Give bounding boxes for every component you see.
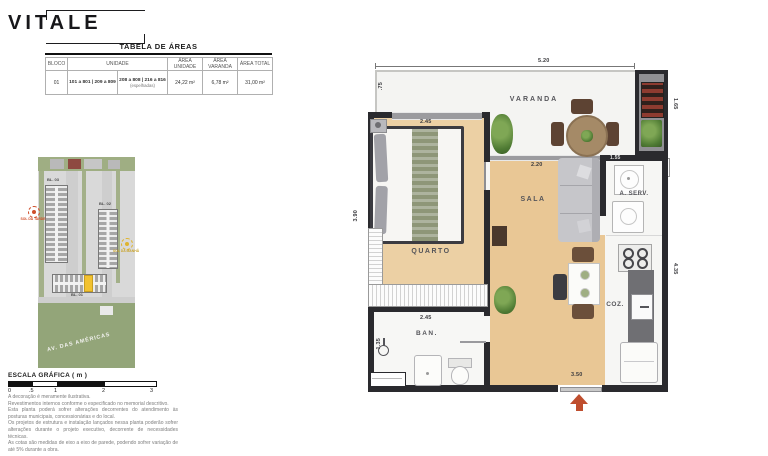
neighbor-building-3 (108, 160, 120, 169)
dim-line-top-tick-right (634, 63, 635, 69)
plate-2 (580, 288, 590, 298)
areas-table-title: TABELA DE ÁREAS (45, 42, 272, 55)
balcony-round-table (566, 115, 608, 157)
balcony-chair-top (571, 99, 593, 114)
floor-plan: 5.20 VARANDA .75 1.65 QUARTO 2.45 3.90 S… (350, 58, 690, 418)
washer-door (620, 208, 637, 225)
cell-unidade-a: 101 a 801 | 209 a 809 (68, 71, 118, 95)
col-unidade: UNIDADE (68, 58, 168, 71)
vanity-drain-dot (426, 372, 429, 375)
planter-box-icon (641, 120, 662, 147)
wardrobe-bottom (368, 284, 488, 307)
sun-afternoon-label: SOL DA TARDE (19, 218, 46, 222)
bl02-building (98, 209, 118, 269)
areas-table-block: TABELA DE ÁREAS BLOCO UNIDADE ÁREA UNIDA… (45, 42, 272, 95)
burner-4 (637, 258, 648, 269)
coz-aserv-divider (606, 235, 662, 236)
bathroom-vanity (414, 355, 442, 386)
disclaimer-line: Esta planta poderá sofrer alterações dec… (8, 407, 178, 420)
cell-area-unidade: 24,22 m² (168, 71, 203, 95)
cell-area-total: 31,00 m² (238, 71, 273, 95)
scale-bar-block: ESCALA GRÁFICA ( m ) 0 .5 1 2 3 (8, 372, 168, 379)
ban-label: BAN. (407, 330, 447, 337)
dim-coz-h: 4.35 (672, 263, 678, 275)
coz-label: COZ. (598, 301, 632, 308)
bed-pillow-2 (374, 186, 388, 234)
cell-bloco: 01 (46, 71, 68, 95)
balcony-chair-left (551, 122, 564, 146)
site-pool (100, 306, 113, 315)
dim-utility-right: 1.65 (672, 98, 678, 110)
scale-segment-3 (57, 382, 105, 386)
plant-sala-icon (494, 286, 516, 314)
dim-varanda-left: .75 (378, 82, 384, 90)
sun-morning-core (125, 242, 129, 246)
sala-label: SALA (510, 196, 556, 203)
disclaimer-line: Os projetos de estrutura e instalação la… (8, 420, 178, 440)
col-area-unidade: ÁREA UNIDADE (168, 58, 203, 71)
fridge-handle (624, 361, 654, 362)
nightstand (370, 119, 387, 133)
bl03-building (45, 185, 68, 263)
neighbor-building-1 (50, 159, 64, 169)
neighbor-building-2 (84, 159, 102, 169)
entry-arrow-stem (576, 404, 583, 411)
cell-area-varanda: 6,78 m² (203, 71, 238, 95)
plant-varanda-icon (491, 114, 513, 154)
kitchen-sink (631, 294, 653, 320)
ban-door-opening (484, 316, 490, 342)
bl02-label: BL. 02 (99, 202, 111, 207)
scale-segment-2 (33, 382, 57, 386)
site-lawn-strip-1 (39, 171, 44, 297)
aserv-door-opening (600, 216, 606, 235)
cell-unidade-b-note: (espelhadas) (118, 83, 167, 88)
disclaimer-line: A decoração é meramente ilustrativa. (8, 394, 178, 401)
dining-chair-bottom (572, 304, 594, 319)
fridge (620, 342, 658, 383)
bed-pillow-1 (374, 134, 388, 183)
scale-bar-ruler (8, 381, 157, 387)
scale-segment-1 (9, 382, 33, 386)
wall-outer-right (662, 155, 668, 392)
dim-aserv-w: 1.55 (610, 155, 621, 161)
shower-head-icon (378, 345, 389, 356)
ban-door-leaf (460, 341, 486, 343)
areas-table: BLOCO UNIDADE ÁREA UNIDADE ÁREA VARANDA … (45, 57, 273, 95)
dim-line-top-tick-left (375, 63, 376, 69)
tv-rack (492, 226, 507, 246)
neighbor-building-red (68, 159, 81, 169)
dim-ban-w: 2.45 (420, 315, 432, 321)
col-area-varanda: ÁREA VARANDA (203, 58, 238, 71)
sofa (558, 158, 600, 242)
aserv-label: A. SERV. (606, 191, 662, 197)
dim-quarto-w: 2.45 (420, 119, 432, 125)
dining-table (568, 263, 600, 305)
plate-1 (580, 270, 590, 280)
bl01-highlighted-unit (84, 275, 93, 292)
site-map: BL. 03 BL. 02 BL. 01 AV. DAS AMÉRICAS (38, 157, 135, 368)
tank-drain-dot (627, 177, 630, 180)
floorplan-marketing-sheet: { "logo": { "text": "VITALE" }, "areas_t… (0, 0, 768, 456)
disclaimer-line: Revestimentos internos conforme o especi… (8, 401, 178, 408)
ban-window (370, 372, 406, 387)
dining-chair-top (572, 247, 594, 262)
bl03-label: BL. 03 (47, 178, 59, 183)
col-bloco: BLOCO (46, 58, 68, 71)
site-lawn-strip-2 (82, 171, 86, 275)
sun-afternoon-icon (28, 206, 40, 218)
faucet-icon (640, 306, 649, 308)
sofa-cushion-line-2 (560, 213, 592, 214)
dim-sala-w: 2.20 (531, 162, 543, 168)
sofa-throw-pillow-1 (576, 164, 591, 179)
quarto-door-leaf (484, 162, 486, 190)
bl01-building (52, 274, 107, 293)
washing-machine (612, 201, 644, 233)
entry-door-panel (560, 387, 602, 392)
sun-morning-label: SOL DA MANHÃ (112, 250, 139, 254)
wall-outer-bottom (368, 385, 668, 392)
dining-chair-left (553, 274, 567, 300)
cell-unidade-b-range: 208 a 808 | 216 a 816 (118, 78, 167, 83)
sofa-backrest (592, 158, 600, 242)
varanda-label: VARANDA (498, 96, 570, 103)
scale-bar-title: ESCALA GRÁFICA ( m ) (8, 372, 168, 379)
bed (370, 126, 464, 244)
sun-morning-icon (121, 238, 133, 250)
scale-segment-4 (105, 382, 154, 386)
table-centerpiece-plant (581, 130, 593, 142)
sofa-throw-pillow-2 (577, 219, 591, 233)
burner-3 (623, 258, 634, 269)
site-lawn-bottom (38, 303, 135, 368)
disclaimer-block: A decoração é meramente ilustrativa. Rev… (8, 394, 178, 453)
disclaimer-line: As cotas são medidas de eixo a eixo de p… (8, 440, 178, 453)
ban-window-mullion (372, 378, 402, 379)
bar-cart (641, 82, 664, 118)
dim-top: 5.20 (536, 58, 552, 64)
wardrobe-left (368, 228, 383, 286)
dim-quarto-h: 3.90 (353, 210, 359, 222)
lamp-icon (375, 122, 381, 128)
dim-entry: 3.50 (571, 372, 583, 378)
dim-line-top (375, 66, 635, 67)
col-area-total: ÁREA TOTAL (238, 58, 273, 71)
quarto-label: QUARTO (396, 248, 466, 255)
sofa-cushion-line-1 (560, 185, 592, 186)
bed-throw-blanket (412, 129, 438, 241)
sun-afternoon-core (32, 210, 36, 214)
brand-logo: VITALE (8, 10, 158, 46)
logo-text: VITALE (8, 12, 102, 35)
entry-arrow-icon (570, 394, 588, 404)
toilet-bowl (451, 366, 469, 385)
stove (618, 244, 652, 272)
cell-unidade-b: 208 a 808 | 216 a 816 (espelhadas) (118, 71, 168, 95)
quarto-varanda-slider (392, 112, 482, 120)
